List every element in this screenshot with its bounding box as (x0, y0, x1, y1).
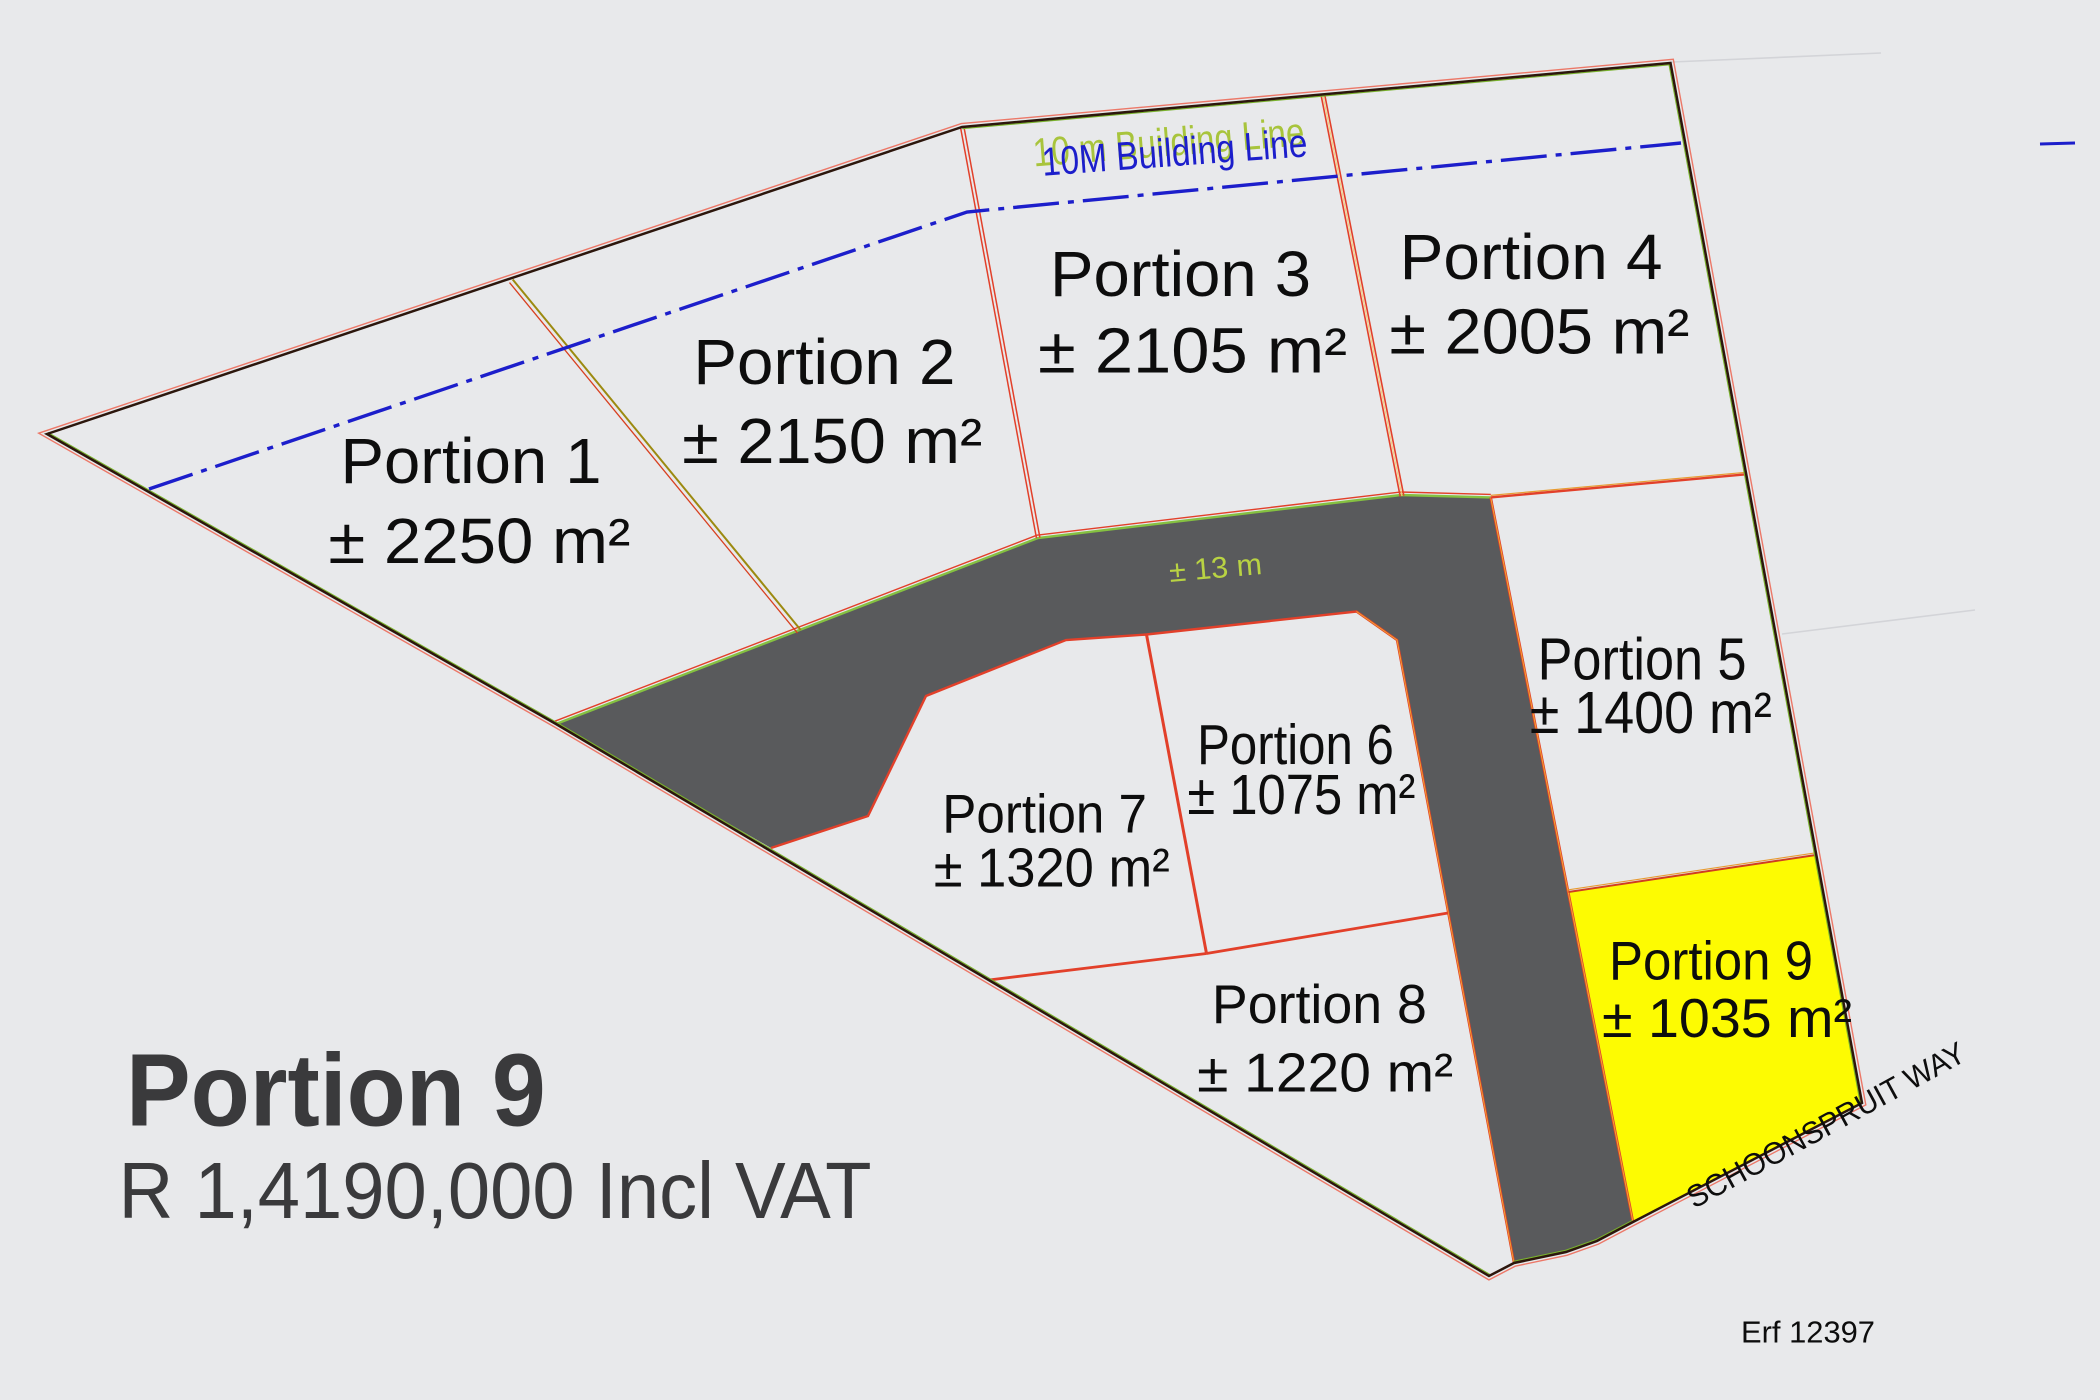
svg-text:Portion 2: Portion 2 (693, 326, 955, 398)
svg-text:± 2005 m²: ± 2005 m² (1389, 295, 1689, 367)
svg-text:± 1220 m²: ± 1220 m² (1197, 1042, 1453, 1104)
svg-text:± 2150 m²: ± 2150 m² (682, 405, 982, 477)
svg-text:Portion 1: Portion 1 (341, 425, 602, 497)
svg-text:± 2105 m²: ± 2105 m² (1038, 315, 1347, 387)
svg-text:Portion 9: Portion 9 (126, 1032, 546, 1147)
svg-text:± 1075 m²: ± 1075 m² (1187, 763, 1415, 827)
svg-text:± 2250 m²: ± 2250 m² (328, 505, 630, 577)
svg-text:± 1320 m²: ± 1320 m² (934, 837, 1170, 899)
svg-text:Erf 12397: Erf 12397 (1741, 1315, 1875, 1350)
svg-text:R 1,4190,000 Incl VAT: R 1,4190,000 Incl VAT (119, 1146, 872, 1235)
svg-text:± 1400 m²: ± 1400 m² (1530, 680, 1772, 746)
svg-text:Portion 8: Portion 8 (1212, 973, 1427, 1035)
svg-text:± 1035 m²: ± 1035 m² (1602, 987, 1852, 1049)
svg-text:Portion 7: Portion 7 (942, 782, 1147, 844)
svg-text:Portion 4: Portion 4 (1400, 221, 1663, 293)
svg-text:Portion 3: Portion 3 (1050, 238, 1311, 310)
svg-text:Portion 9: Portion 9 (1609, 929, 1813, 991)
